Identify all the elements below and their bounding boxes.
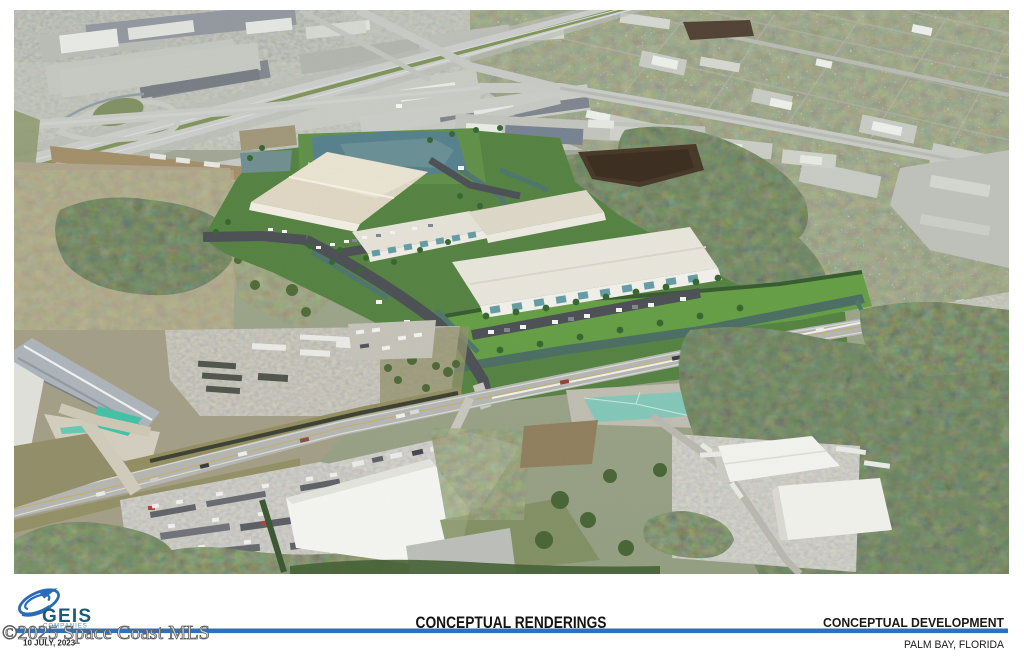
svg-text:CONCEPTUAL RENDERINGS: CONCEPTUAL RENDERINGS: [416, 613, 607, 632]
svg-text:CONCEPTUAL DEVELOPMENT: CONCEPTUAL DEVELOPMENT: [823, 615, 1004, 630]
svg-text:10 JULY, 2023: 10 JULY, 2023: [23, 639, 76, 648]
svg-text:PALM BAY, FLORIDA: PALM BAY, FLORIDA: [904, 639, 1005, 651]
